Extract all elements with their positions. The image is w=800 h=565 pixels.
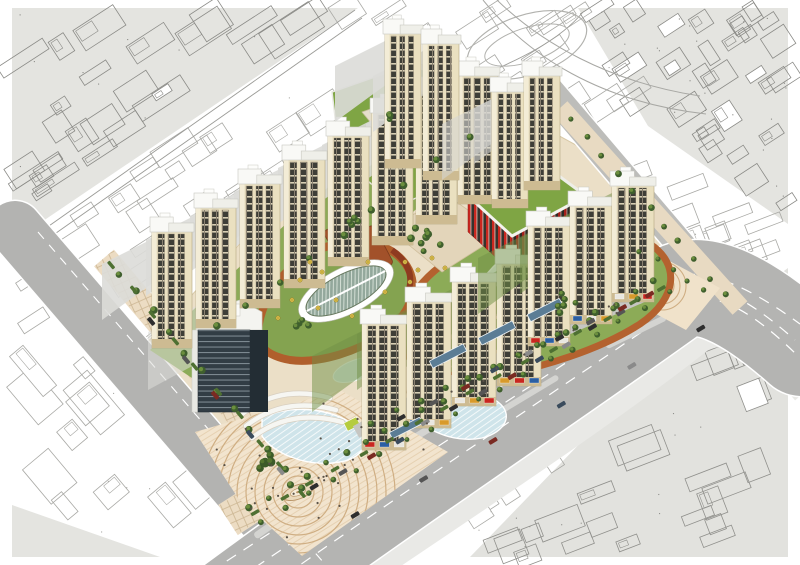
residential-tower	[383, 15, 423, 168]
residential-tower	[238, 165, 282, 308]
residential-tower	[522, 57, 562, 190]
residential-tower	[194, 189, 238, 328]
residential-tower	[610, 167, 656, 302]
residential-tower	[282, 141, 327, 288]
architectural-rendering-page	[0, 0, 800, 565]
residential-tower	[150, 213, 194, 348]
residential-tower	[326, 117, 371, 266]
masterplan-rendering-svg	[0, 0, 800, 565]
residential-tower	[526, 207, 572, 346]
masterplan-figure	[0, 0, 800, 565]
